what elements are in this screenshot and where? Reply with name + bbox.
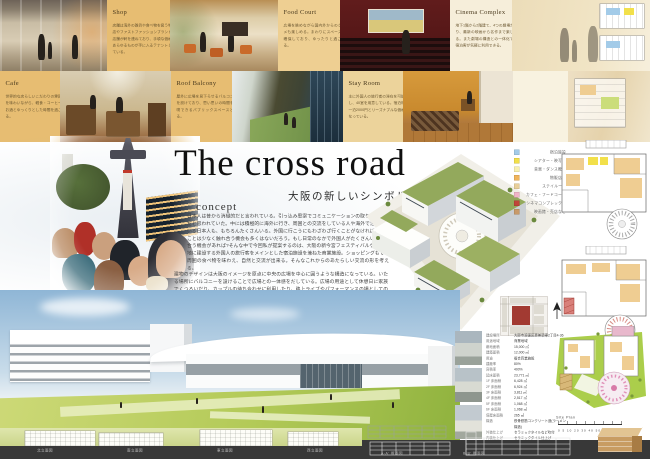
site-location-map xyxy=(500,296,548,336)
detail-front-face xyxy=(598,436,632,452)
plan-thumbnail xyxy=(600,36,644,60)
sectional-axon-detail xyxy=(598,427,644,455)
plan-cell-blue xyxy=(606,41,620,48)
side-block xyxy=(428,346,458,388)
figure-silhouette xyxy=(402,30,410,54)
menu-screen xyxy=(222,22,248,36)
presentation-board: Shop 店舗は海外の雑貨や食べ物を扱う物販店やファストファッションブランドの店… xyxy=(0,0,650,459)
figure-silhouette xyxy=(572,40,577,62)
cinema-seats xyxy=(340,38,450,71)
elevation-labels: 北立面図南立面図東立面図西立面図 xyxy=(0,448,360,458)
section-sketch-grey xyxy=(368,426,446,438)
floor-plan-upper xyxy=(558,140,650,240)
card-stay-room-text: 主に外国人の旅行者の滞在を可能とし、40室を用意している。宿泊料は一泊2000円… xyxy=(349,93,409,120)
orange-chair xyxy=(184,44,196,53)
figure-silhouette xyxy=(588,26,598,62)
context-photo xyxy=(455,331,482,365)
entrance-glass xyxy=(300,364,362,388)
plan-thumbnail xyxy=(575,79,625,127)
card-shop: Shop 店舗は海外の雑貨や食べ物を扱う物販店やファストファッションブランドの店… xyxy=(107,0,170,71)
figure-silhouette xyxy=(72,35,78,59)
concept-label: concept xyxy=(196,201,237,213)
site-plan-label: Site Plan xyxy=(556,415,576,420)
site-plan-drawing xyxy=(552,326,650,410)
elevation-drawing-1 xyxy=(25,431,95,446)
plan-cell-blue xyxy=(606,8,620,15)
figure-silhouette xyxy=(48,42,52,59)
detail-side-face xyxy=(632,436,642,452)
faded-interior-photo xyxy=(513,71,650,142)
card-roof-balcony-text: 屋外に広場を見下ろせるバルコニーを設けており、思い思いの時間を満喫できるパブリッ… xyxy=(177,93,238,120)
card-food-court-text: 広場を眺めながら国内外からのグルメも楽しめる。まわりにスペースも確保しており、ゆ… xyxy=(284,22,346,49)
shop-interior-photo xyxy=(0,0,107,71)
cloud xyxy=(230,308,300,320)
card-shop-text: 店舗は海外の雑貨や食べ物を扱う物販店やファストファッションブランドの店舗が軒を連… xyxy=(113,22,176,55)
card-shop-title: Shop xyxy=(113,8,176,16)
section-labels: A-A' 断面図B-B' 断面図 xyxy=(366,451,578,459)
cinema-photo xyxy=(340,0,450,71)
card-food-court-title: Food Court xyxy=(284,8,346,16)
context-photo-strip xyxy=(455,331,482,439)
section-label: B-B' 断面図 xyxy=(463,451,485,456)
card-cafe-title: Cafe xyxy=(6,79,66,87)
figure-silhouette xyxy=(200,32,206,52)
card-cinema: Cinema Complex 地下1階から2階建て、4つの劇場があり、最新の映画… xyxy=(450,0,512,71)
card-cafe-text: 世界的な店らしいこだわりの雰囲気を味わいながら、軽食・コーヒー・お酒とゆっくりと… xyxy=(6,93,66,120)
elevation-label: 南立面図 xyxy=(127,448,143,453)
figure-silhouette xyxy=(116,97,123,113)
figure-silhouette xyxy=(262,406,264,413)
wood-booth xyxy=(66,105,96,135)
food-court-photo xyxy=(170,0,278,71)
figure-silhouette xyxy=(467,91,472,104)
elevation-drawing-3 xyxy=(200,430,272,446)
hotel-slab-building xyxy=(10,330,150,382)
orange-chair xyxy=(210,48,223,57)
elevation-label: 西立面図 xyxy=(307,448,323,453)
site-plan-label-block: Site Plan xyxy=(556,412,616,420)
elevation-drawing-2 xyxy=(99,433,163,446)
faded-concourse-photo xyxy=(512,0,650,71)
cinema-screen xyxy=(368,9,424,33)
card-cinema-title: Cinema Complex xyxy=(456,8,518,16)
north-arrow-icon xyxy=(552,302,562,320)
elevation-label: 東立面図 xyxy=(217,448,233,453)
card-roof-balcony-title: Roof Balcony xyxy=(177,79,238,87)
elevation-label: 北立面図 xyxy=(37,448,53,453)
elevation-drawing-4 xyxy=(288,432,338,446)
figure-silhouette xyxy=(560,28,569,62)
cloud xyxy=(40,298,130,316)
plan-cell-tan xyxy=(580,85,596,95)
figure-silhouette xyxy=(284,113,288,125)
section-label: A-A' 断面図 xyxy=(381,451,403,456)
card-food-court: Food Court 広場を眺めながら国内外からのグルメも楽しめる。まわりにスペ… xyxy=(278,0,340,71)
figure-silhouette xyxy=(292,117,296,128)
context-photo xyxy=(455,368,482,402)
figure-silhouette xyxy=(90,95,96,109)
bed xyxy=(411,111,459,131)
figure-silhouette xyxy=(38,34,45,60)
mall-columns-decor xyxy=(0,0,107,71)
site-parcel-red xyxy=(512,306,530,325)
card-stay-room-title: Stay Room xyxy=(349,79,409,87)
plan-cell-green xyxy=(601,97,619,109)
orange-chair xyxy=(240,45,252,54)
plan-thumbnail xyxy=(600,4,644,28)
main-perspective-rendering xyxy=(0,290,460,440)
plan-cell-yellow xyxy=(624,8,634,15)
card-cinema-text: 地下1階から2階建て、4つの劇場があり、最新の映画から名作まで楽しめる。また劇場… xyxy=(456,22,518,49)
